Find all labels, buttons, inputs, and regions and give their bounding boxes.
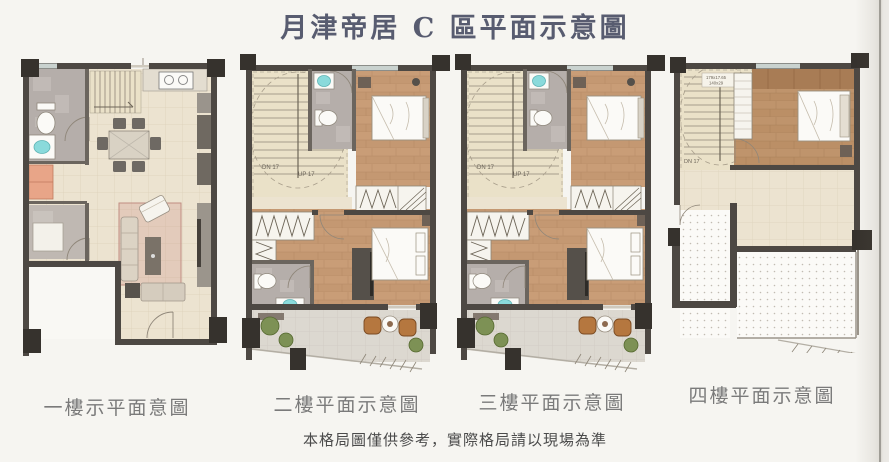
corner-detail	[412, 78, 420, 86]
toilet	[37, 103, 55, 134]
stair-dim-2: 140x29	[709, 81, 724, 86]
floorplan-2: DN 17 UP 17	[240, 52, 454, 382]
fridge	[197, 93, 211, 113]
plant	[624, 338, 638, 352]
window	[39, 64, 57, 69]
closet	[734, 73, 752, 139]
sink	[318, 76, 331, 87]
counter-low	[197, 153, 211, 185]
toilet	[469, 274, 491, 290]
bed	[372, 96, 429, 140]
stair-up-label: UP 17	[298, 172, 315, 178]
floor-4-caption: 四樓平面示意圖	[677, 381, 847, 408]
balcony-threshold	[603, 306, 631, 309]
stove	[159, 72, 193, 89]
bathroom-upper	[527, 69, 569, 149]
plant	[279, 333, 293, 347]
toilet	[530, 110, 552, 126]
window	[756, 64, 800, 69]
disclaimer-note: 本格局圖僅供參考，實際格局請以現場為準	[250, 429, 660, 450]
window	[352, 66, 398, 71]
bed	[587, 96, 644, 140]
bed	[372, 228, 428, 280]
terrace-edge	[778, 340, 858, 353]
plant	[261, 317, 279, 335]
plant	[476, 317, 494, 335]
nightstand	[358, 77, 371, 88]
rattan-chair	[399, 319, 416, 336]
wardrobe-mid	[571, 186, 641, 212]
floor-4-svg: 179x17.65 140x29 DN 17	[668, 53, 880, 353]
page-fold-line	[879, 0, 881, 462]
stair-dim-1: 179x17.65	[706, 75, 727, 80]
window	[567, 66, 613, 71]
rattan-chair	[614, 319, 631, 336]
bathroom-upper	[312, 69, 354, 149]
entry-threshold	[131, 65, 149, 68]
balcony	[467, 310, 645, 372]
page-fold	[855, 0, 889, 462]
bed	[587, 228, 643, 280]
stair-down-label: DN 17	[262, 165, 280, 171]
page-title: 月津帝居 C 區平面示意圖	[255, 6, 655, 45]
rattan-chair	[579, 317, 596, 334]
storage-room	[29, 205, 85, 259]
bedroom	[734, 69, 854, 167]
tv-screen	[197, 219, 201, 267]
cabinet-orange	[29, 165, 53, 199]
floorplan-4: 179x17.65 140x29 DN 17	[668, 53, 880, 353]
plant	[409, 338, 423, 352]
plant	[494, 333, 508, 347]
courtyard	[29, 267, 115, 339]
stair-down-label: DN 17	[684, 159, 700, 165]
counter-tall	[197, 115, 211, 149]
living-set	[119, 194, 212, 301]
floorplan-3: DN 17 UP 17	[455, 52, 669, 382]
stairs-1f	[90, 71, 141, 113]
scanned-floorplan-page: 月津帝居 C 區平面示意圖	[0, 0, 889, 462]
floorplan-1	[13, 57, 232, 379]
corner-detail	[627, 78, 635, 86]
floor-1-svg	[13, 57, 232, 379]
nightstand	[840, 145, 852, 157]
floor-3-svg: DN 17 UP 17	[455, 52, 669, 382]
floor-2-svg: DN 17 UP 17	[240, 52, 454, 382]
floor-1-caption: 一樓示平面意圖	[32, 393, 202, 420]
balcony-threshold	[388, 306, 416, 309]
floor-2-caption: 二樓平面示意圖	[262, 390, 432, 417]
stair-up-label: UP 17	[513, 172, 530, 178]
stair-down-label: DN 17	[477, 165, 495, 171]
rattan-chair	[364, 317, 381, 334]
sink	[533, 76, 546, 87]
side-table	[125, 283, 140, 298]
toilet	[315, 110, 337, 126]
balcony	[252, 310, 430, 372]
sink	[29, 135, 55, 159]
nightstand	[573, 77, 586, 88]
hall-fill	[467, 197, 567, 209]
toilet	[254, 274, 276, 290]
bed	[798, 91, 850, 141]
hall-fill	[252, 197, 352, 209]
bathroom-1f	[29, 69, 85, 163]
wardrobe-mid	[356, 186, 426, 212]
floor-3-caption: 三樓平面示意圖	[467, 388, 637, 415]
